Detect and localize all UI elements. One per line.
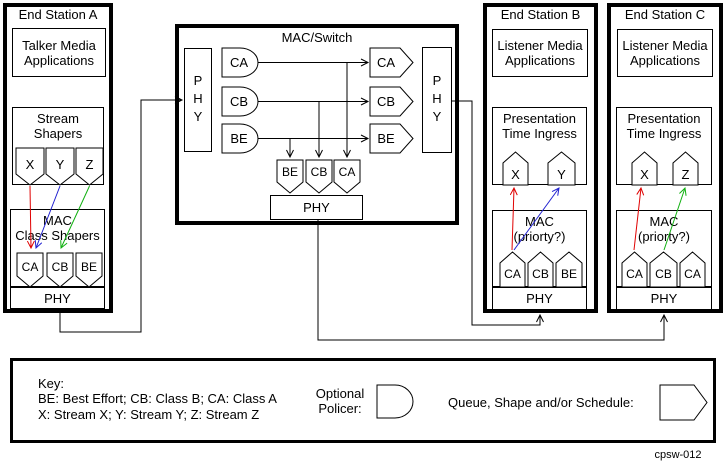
ingress-b-label-line2: Time Ingress [502, 126, 577, 141]
tsn-stream-diagram: End Station A Talker Media Applications … [0, 0, 724, 469]
stream-shapers-label-line2: Shapers [34, 126, 82, 141]
key-class-line: BE: Best Effort; CB: Class B; CA: Class … [38, 391, 277, 406]
talker-label-line2: Applications [24, 53, 94, 68]
mac-c-label-line2: (priorty?) [638, 229, 690, 244]
presentation-time-ingress-box-b: Presentation Time Ingress [492, 107, 587, 185]
station-a-title: End Station A [3, 8, 113, 22]
listener-c-label-line2: Applications [630, 53, 700, 68]
station-b-phy-box: PHY [492, 287, 587, 310]
listener-c-label-line1: Listener Media [622, 38, 707, 53]
mac-class-shapers-box: MAC Class Shapers [10, 209, 105, 287]
optional-policer-label: Optional Policer: [308, 386, 372, 416]
listener-b-label-line2: Applications [505, 53, 575, 68]
listener-b-label-line1: Listener Media [497, 38, 582, 53]
station-a-phy-label: PHY [44, 291, 71, 306]
mac-class-shapers-label-line2: Class Shapers [15, 228, 100, 243]
mac-switch-title: MAC/Switch [175, 31, 459, 45]
switch-phy-left-box: PHY [184, 48, 212, 152]
stream-shapers-box: Stream Shapers [12, 107, 104, 185]
key-title: Key: [38, 376, 64, 391]
talker-label-line1: Talker Media [22, 38, 96, 53]
mac-b-label-line2: (priorty?) [513, 229, 565, 244]
mac-b-label-line1: MAC [525, 214, 554, 229]
queue-shape-schedule-label: Queue, Shape and/or Schedule: [448, 395, 634, 410]
station-b-title: End Station B [483, 8, 598, 22]
ingress-c-label-line2: Time Ingress [627, 126, 702, 141]
switch-phy-bottom-box: PHY [270, 195, 363, 220]
optional-policer-line2: Policer: [318, 401, 361, 416]
ingress-b-label-line1: Presentation [503, 111, 576, 126]
figure-id: cpsw-012 [640, 449, 716, 461]
switch-phy-bottom-label: PHY [303, 200, 330, 215]
switch-phy-right-label: PHY [430, 73, 445, 127]
mac-c-label-line1: MAC [650, 214, 679, 229]
station-b-phy-label: PHY [526, 291, 553, 306]
mac-priority-box-c: MAC (priorty?) [616, 210, 712, 287]
optional-policer-line1: Optional [316, 386, 364, 401]
stream-shapers-label-line1: Stream [37, 111, 79, 126]
switch-phy-right-box: PHY [422, 47, 452, 153]
station-c-phy-box: PHY [616, 287, 712, 310]
talker-media-applications-box: Talker Media Applications [12, 28, 106, 77]
key-stream-line: X: Stream X; Y: Stream Y; Z: Stream Z [38, 407, 259, 422]
station-a-phy-box: PHY [10, 287, 105, 309]
ingress-c-label-line1: Presentation [628, 111, 701, 126]
listener-media-applications-box-c: Listener Media Applications [617, 29, 713, 77]
mac-class-shapers-label-line1: MAC [43, 213, 72, 228]
station-c-title: End Station C [607, 8, 723, 22]
presentation-time-ingress-box-c: Presentation Time Ingress [616, 107, 712, 185]
listener-media-applications-box-b: Listener Media Applications [492, 29, 588, 77]
station-c-phy-label: PHY [651, 291, 678, 306]
mac-priority-box-b: MAC (priorty?) [492, 210, 587, 287]
switch-phy-left-label: PHY [191, 73, 206, 127]
